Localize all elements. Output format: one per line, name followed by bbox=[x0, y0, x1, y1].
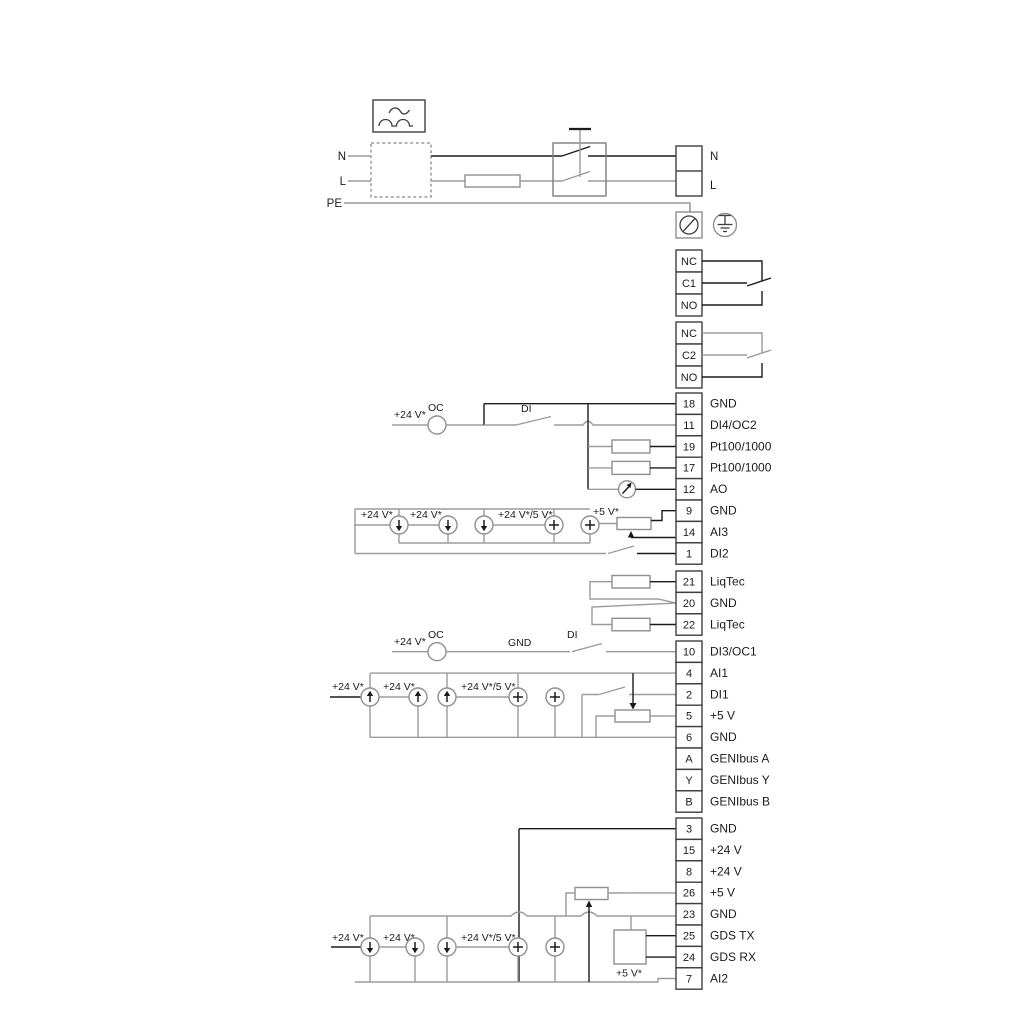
relay2-no: NO bbox=[681, 372, 698, 384]
svg-text:AI2: AI2 bbox=[710, 971, 728, 985]
ac-supply-box bbox=[373, 100, 425, 132]
block-n-label: N bbox=[710, 151, 718, 163]
section-ai2-gds-wiring: +24 V* +24 V* +24 V*/5 V* +5 V* bbox=[331, 829, 676, 982]
svg-text:3: 3 bbox=[686, 824, 692, 836]
svg-text:2: 2 bbox=[686, 689, 692, 701]
svg-text:GENIbus Y: GENIbus Y bbox=[710, 773, 770, 787]
potentiometer bbox=[617, 518, 651, 530]
earth-ground-icon bbox=[714, 214, 737, 237]
svg-text:10: 10 bbox=[683, 647, 695, 659]
svg-text:GND: GND bbox=[710, 596, 737, 610]
svg-text:Y: Y bbox=[685, 775, 693, 787]
svg-text:GND: GND bbox=[710, 907, 737, 921]
di1-switch-blade-icon bbox=[599, 687, 625, 695]
svg-text:+24 V: +24 V bbox=[710, 864, 742, 878]
s2-24v-label2: +24 V* bbox=[410, 509, 442, 521]
gds-sensor-box bbox=[614, 930, 646, 964]
terminal-row: BGENIbus B bbox=[676, 791, 770, 812]
terminal-row: 14AI3 bbox=[676, 521, 728, 542]
terminal-row: 25GDS TX bbox=[676, 925, 754, 946]
fuse bbox=[465, 175, 520, 187]
s6-245v-label: +24 V*/5 V* bbox=[461, 932, 516, 944]
wiper-arrow-icon bbox=[628, 531, 634, 538]
svg-text:22: 22 bbox=[683, 619, 695, 631]
di3-switch-blade-icon bbox=[572, 644, 602, 652]
potentiometer bbox=[575, 888, 608, 900]
svg-text:GENIbus B: GENIbus B bbox=[710, 794, 770, 808]
terminal-group-4: 3GND 15+24 V 8+24 V 26+5 V 23GND 25GDS T… bbox=[676, 818, 756, 989]
gnd9-wire bbox=[651, 511, 676, 521]
s3-di-label: DI bbox=[567, 629, 578, 641]
terminal-row: 19Pt100/1000 bbox=[676, 436, 772, 457]
svg-text:18: 18 bbox=[683, 399, 695, 411]
terminal-row: 2DI1 bbox=[676, 684, 729, 705]
svg-text:GND: GND bbox=[710, 730, 737, 744]
voltage-source-icon bbox=[546, 688, 564, 706]
relay1-contact-blade-icon bbox=[747, 278, 771, 286]
s2-24v-label: +24 V* bbox=[361, 509, 393, 521]
svg-text:LiqTec: LiqTec bbox=[710, 617, 745, 631]
section-liqtec-wiring bbox=[590, 576, 676, 631]
current-source-icon bbox=[361, 688, 379, 706]
terminal-row: 10DI3/OC1 bbox=[676, 641, 757, 662]
terminal-row: 17Pt100/1000 bbox=[676, 457, 772, 478]
svg-text:Pt100/1000: Pt100/1000 bbox=[710, 461, 772, 475]
relay2-contact-blade-icon bbox=[747, 350, 771, 358]
terminal-group-2: 21LiqTec 20GND 22LiqTec bbox=[676, 571, 745, 635]
section-ai3-wiring: +24 V* +24 V* +24 V*/5 V* +5 V* bbox=[354, 506, 676, 554]
terminal-row: 3GND bbox=[676, 818, 737, 839]
s1-di-label: DI bbox=[521, 403, 532, 415]
svg-text:8: 8 bbox=[686, 866, 692, 878]
svg-text:19: 19 bbox=[683, 441, 695, 453]
svg-text:15: 15 bbox=[683, 845, 695, 857]
current-source-icon bbox=[439, 516, 457, 534]
s4-24v-label: +24 V* bbox=[332, 681, 364, 693]
pot26-gnd-lead bbox=[566, 893, 575, 916]
n-label: N bbox=[338, 151, 346, 163]
svg-text:AO: AO bbox=[710, 482, 727, 496]
relay1-no: NO bbox=[681, 300, 698, 312]
svg-text:4: 4 bbox=[686, 668, 692, 680]
s6-24v-label: +24 V* bbox=[332, 932, 364, 944]
svg-text:GND: GND bbox=[710, 822, 737, 836]
svg-text:+5 V: +5 V bbox=[710, 709, 735, 723]
svg-text:B: B bbox=[685, 796, 692, 808]
wiper-arrow-icon bbox=[586, 901, 592, 908]
terminal-row: 12AO bbox=[676, 479, 727, 500]
terminal-row: 6GND bbox=[676, 727, 737, 748]
terminal-row: 20GND bbox=[676, 592, 737, 613]
terminal-row: 22LiqTec bbox=[676, 614, 745, 635]
terminal-row: 11DI4/OC2 bbox=[676, 414, 757, 435]
relay2-c2: C2 bbox=[682, 350, 696, 362]
terminal-row: 1DI2 bbox=[676, 543, 729, 564]
relay1-nc: NC bbox=[681, 256, 697, 268]
terminal-row: 24GDS RX bbox=[676, 946, 756, 967]
relay1-no-wire bbox=[702, 291, 762, 305]
svg-text:Pt100/1000: Pt100/1000 bbox=[710, 439, 772, 453]
current-source-icon bbox=[406, 938, 424, 956]
terminal-row: 8+24 V bbox=[676, 861, 742, 882]
terminal-group-1: 18GND 11DI4/OC2 19Pt100/1000 17Pt100/100… bbox=[676, 393, 772, 564]
gnd23-bus bbox=[370, 912, 676, 916]
svg-text:AI3: AI3 bbox=[710, 525, 728, 539]
voltage-source-icon bbox=[509, 938, 527, 956]
terminal-row: 4AI1 bbox=[676, 662, 728, 683]
terminal-row: 18GND bbox=[676, 393, 737, 414]
current-source-icon bbox=[409, 688, 427, 706]
svg-text:26: 26 bbox=[683, 888, 695, 900]
terminal-row: 9GND bbox=[676, 500, 737, 521]
svg-text:AI1: AI1 bbox=[710, 666, 728, 680]
voltage-source-icon bbox=[509, 688, 527, 706]
s2-5v-label: +5 V* bbox=[593, 506, 619, 518]
svg-text:23: 23 bbox=[683, 909, 695, 921]
l-switch-blade bbox=[562, 172, 590, 182]
terminal-row: AGENIbus A bbox=[676, 748, 769, 769]
svg-text:1: 1 bbox=[686, 548, 692, 560]
s6-5v-label: +5 V* bbox=[616, 968, 642, 980]
current-source-icon bbox=[438, 938, 456, 956]
svg-text:20: 20 bbox=[683, 598, 695, 610]
s4-245v-label: +24 V*/5 V* bbox=[461, 681, 516, 693]
current-source-icon bbox=[361, 938, 379, 956]
s4-24v-label2: +24 V* bbox=[383, 681, 415, 693]
wiring-diagram: N L PE N L bbox=[0, 0, 1024, 1024]
svg-text:GDS RX: GDS RX bbox=[710, 950, 756, 964]
svg-text:5: 5 bbox=[686, 711, 692, 723]
open-collector-icon bbox=[428, 643, 446, 661]
svg-text:A: A bbox=[685, 754, 693, 766]
potentiometer bbox=[615, 710, 650, 722]
terminal-row: 21LiqTec bbox=[676, 571, 745, 592]
section-ai1-wiring: +24 V* +24 V* +24 V*/5 V* bbox=[330, 673, 676, 737]
svg-text:12: 12 bbox=[683, 484, 695, 496]
s1-oc-label: OC bbox=[428, 402, 444, 414]
svg-text:DI4/OC2: DI4/OC2 bbox=[710, 418, 757, 432]
power-section: N L PE N L bbox=[327, 100, 737, 238]
svg-text:GENIbus A: GENIbus A bbox=[710, 752, 769, 766]
n-switch-blade bbox=[562, 147, 590, 157]
svg-text:DI2: DI2 bbox=[710, 546, 729, 560]
terminal-row: 7AI2 bbox=[676, 968, 728, 989]
s3-24v-label: +24 V* bbox=[394, 636, 426, 648]
di2-switch-blade-icon bbox=[608, 546, 634, 554]
di4-wire2 bbox=[554, 421, 676, 425]
pe-label: PE bbox=[327, 198, 343, 210]
terminal-row: 23GND bbox=[676, 904, 737, 925]
current-source-icon bbox=[438, 688, 456, 706]
s3-oc-label: OC bbox=[428, 629, 444, 641]
s2-245v-label: +24 V*/5 V* bbox=[498, 509, 553, 521]
terminal-row: 15+24 V bbox=[676, 839, 742, 860]
s3-gnd-label: GND bbox=[508, 637, 532, 649]
svg-text:+24 V: +24 V bbox=[710, 843, 742, 857]
svg-text:24: 24 bbox=[683, 952, 695, 964]
pot-gnd-lead bbox=[596, 716, 615, 737]
section-di3-wiring: +24 V* OC GND DI bbox=[392, 629, 676, 661]
wiper-arrow-icon bbox=[630, 703, 637, 710]
filter-box bbox=[371, 143, 431, 197]
svg-text:14: 14 bbox=[683, 527, 695, 539]
relay1-c1: C1 bbox=[682, 278, 696, 290]
svg-text:LiqTec: LiqTec bbox=[710, 575, 745, 589]
di4-switch-blade-icon bbox=[516, 417, 551, 426]
current-source-icon bbox=[475, 516, 493, 534]
voltage-source-icon bbox=[545, 516, 563, 534]
terminal-row: 5+5 V bbox=[676, 705, 735, 726]
terminal-group-3: 10DI3/OC1 4AI1 2DI1 5+5 V 6GND AGENIbus … bbox=[676, 641, 770, 812]
terminal-row: YGENIbus Y bbox=[676, 769, 770, 790]
voltage-source-icon bbox=[581, 516, 599, 534]
svg-text:9: 9 bbox=[686, 506, 692, 518]
svg-text:6: 6 bbox=[686, 732, 692, 744]
relay1-nc-wire bbox=[702, 261, 762, 281]
wiring-diagram-page: N L PE N L bbox=[0, 0, 1024, 1024]
svg-text:21: 21 bbox=[683, 577, 695, 589]
section-di4-wiring: +24 V* OC DI bbox=[392, 402, 676, 498]
relay2-nc-wire bbox=[702, 333, 762, 353]
svg-text:GDS TX: GDS TX bbox=[710, 929, 754, 943]
svg-text:+5 V: +5 V bbox=[710, 886, 735, 900]
relay2-no-wire bbox=[702, 363, 762, 377]
relay2-group: NC C2 NO bbox=[676, 322, 771, 388]
liqtec-22-resistor bbox=[612, 618, 650, 631]
svg-text:17: 17 bbox=[683, 463, 695, 475]
svg-text:7: 7 bbox=[686, 973, 692, 985]
svg-text:25: 25 bbox=[683, 931, 695, 943]
pt100-19-resistor bbox=[612, 440, 650, 453]
block-l-label: L bbox=[710, 180, 717, 192]
svg-text:GND: GND bbox=[710, 397, 737, 411]
terminal-row: 26+5 V bbox=[676, 882, 735, 903]
pe-wire bbox=[344, 203, 690, 212]
svg-text:GND: GND bbox=[710, 504, 737, 518]
s1-24v-label: +24 V* bbox=[394, 409, 426, 421]
liqtec-21-resistor bbox=[612, 576, 650, 589]
svg-text:DI3/OC1: DI3/OC1 bbox=[710, 645, 757, 659]
voltage-source-icon bbox=[546, 938, 564, 956]
svg-text:DI1: DI1 bbox=[710, 687, 729, 701]
svg-text:11: 11 bbox=[683, 420, 694, 432]
relay2-nc: NC bbox=[681, 328, 697, 340]
open-collector-icon bbox=[428, 416, 446, 434]
relay1-group: NC C1 NO bbox=[676, 250, 771, 316]
current-source-icon bbox=[390, 516, 408, 534]
pt100-17-resistor bbox=[612, 461, 650, 474]
l-label: L bbox=[340, 176, 347, 188]
